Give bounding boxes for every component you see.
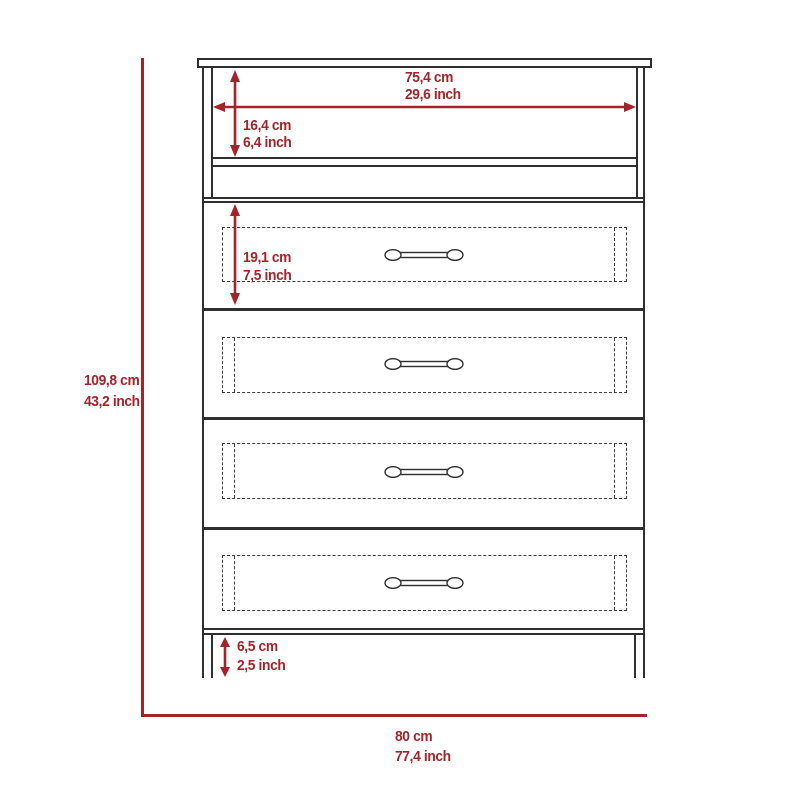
right-side-panel-inner-line — [636, 68, 638, 197]
drawer-handle-icon — [384, 248, 464, 262]
drawer-inner-dash-right — [614, 556, 615, 610]
leg-height-arrow — [219, 637, 231, 677]
drawer-divider — [204, 527, 643, 530]
leg-height-label-inch: 2,5 inch — [237, 658, 285, 674]
drawer-inner-dash-left — [234, 444, 235, 498]
left-side-panel-inner-line — [211, 68, 213, 197]
drawer-inner-dash-left — [234, 556, 235, 610]
open-shelf — [212, 157, 636, 167]
overall-width-dimension-line — [141, 714, 647, 717]
shelf-height-arrow — [229, 70, 241, 157]
drawer-divider — [204, 308, 643, 311]
shelf-height-label-inch: 6,4 inch — [243, 135, 291, 151]
drawer-handle-icon — [384, 465, 464, 479]
upper-section-bottom-line — [202, 197, 645, 199]
overall-height-label-cm: 109,8 cm — [84, 373, 139, 389]
drawer-inner-dash-right — [614, 338, 615, 392]
drawer-height-arrow — [229, 204, 241, 305]
base-rail-line — [202, 628, 645, 630]
right-side-panel-outer-line — [643, 68, 645, 201]
drawer-handle-icon — [384, 357, 464, 371]
drawer-height-label-inch: 7,5 inch — [243, 268, 291, 284]
dresser-top-panel — [197, 58, 652, 68]
drawer-divider — [204, 417, 643, 420]
overall-width-label-cm: 80 cm — [395, 729, 432, 745]
drawer-inner-dash-left — [234, 338, 235, 392]
shelf-width-label-inch: 29,6 inch — [405, 87, 461, 103]
overall-width-label-inch: 77,4 inch — [395, 749, 451, 765]
dimension-diagram: 75,4 cm 29,6 inch 16,4 cm 6,4 inch 19,1 … — [0, 0, 800, 800]
drawer-inner-dash-right — [614, 444, 615, 498]
overall-height-label-inch: 43,2 inch — [84, 394, 140, 410]
dresser-leg-left — [202, 635, 213, 678]
drawer-height-label-cm: 19,1 cm — [243, 250, 291, 266]
dresser-leg-right — [634, 635, 645, 678]
shelf-width-label-cm: 75,4 cm — [405, 70, 453, 86]
drawer-handle-icon — [384, 576, 464, 590]
leg-height-label-cm: 6,5 cm — [237, 639, 278, 655]
overall-height-dimension-line — [141, 58, 144, 717]
shelf-height-label-cm: 16,4 cm — [243, 118, 291, 134]
left-side-panel-outer-line — [202, 68, 204, 201]
drawer-inner-dash-right — [614, 228, 615, 281]
